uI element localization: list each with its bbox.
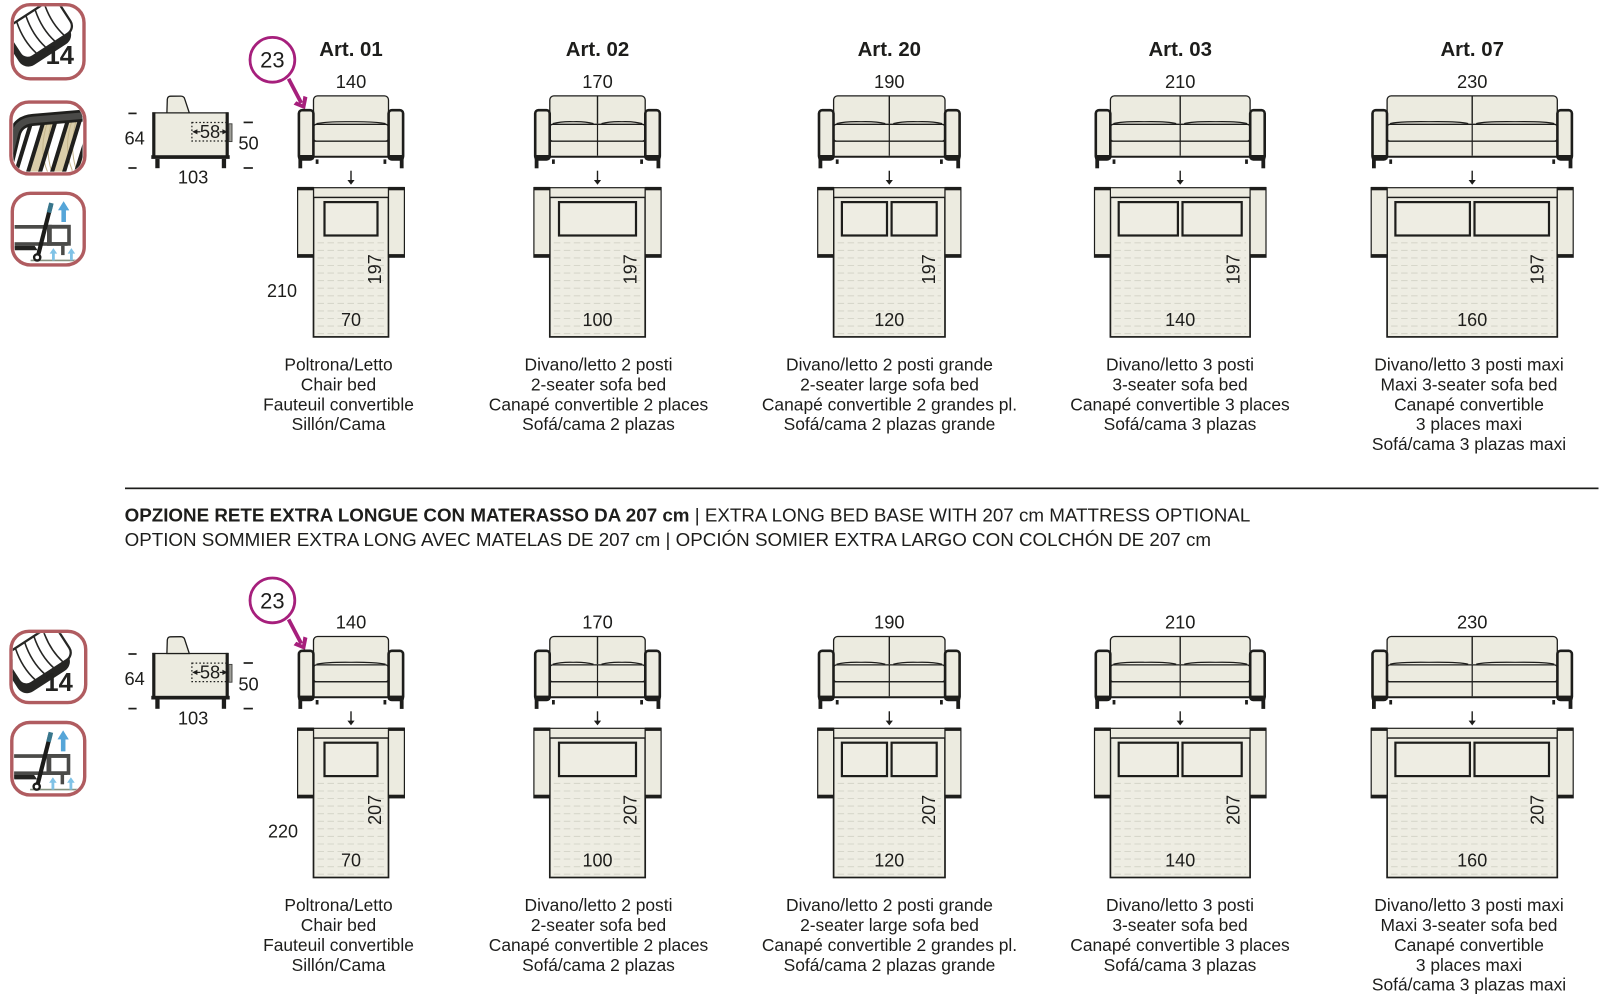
svg-text:207: 207 xyxy=(621,795,641,825)
svg-text:207: 207 xyxy=(365,795,385,825)
svg-text:207: 207 xyxy=(919,795,939,825)
svg-text:Divano/letto 3 posti maxiMaxi: Divano/letto 3 posti maxiMaxi 3-seater s… xyxy=(1372,355,1566,455)
svg-text:Divano/letto 2 posti grande2-s: Divano/letto 2 posti grande2-seater larg… xyxy=(762,895,1017,975)
svg-text:58: 58 xyxy=(200,662,220,683)
svg-text:58: 58 xyxy=(200,121,220,142)
svg-text:100: 100 xyxy=(582,851,612,871)
svg-text:Divano/letto 3 posti maxiMaxi: Divano/letto 3 posti maxiMaxi 3-seater s… xyxy=(1372,895,1566,995)
svg-text:120: 120 xyxy=(874,851,904,871)
svg-text:197: 197 xyxy=(621,254,641,284)
svg-text:207: 207 xyxy=(1527,795,1547,825)
svg-text:14: 14 xyxy=(44,669,73,697)
svg-text:64: 64 xyxy=(125,668,145,689)
svg-text:230: 230 xyxy=(1457,71,1488,92)
svg-text:23: 23 xyxy=(260,588,284,613)
svg-text:170: 170 xyxy=(582,612,613,633)
svg-text:Art. 02: Art. 02 xyxy=(566,39,629,61)
svg-text:OPTION SOMMIER EXTRA LONG AVEC: OPTION SOMMIER EXTRA LONG AVEC MATELAS D… xyxy=(125,529,1211,550)
svg-text:14: 14 xyxy=(46,42,75,70)
svg-text:197: 197 xyxy=(365,254,385,284)
svg-text:197: 197 xyxy=(1224,254,1244,284)
svg-text:Art. 20: Art. 20 xyxy=(858,39,921,61)
svg-text:140: 140 xyxy=(336,71,367,92)
svg-text:220: 220 xyxy=(268,822,298,842)
svg-text:210: 210 xyxy=(267,281,297,301)
svg-text:Art. 07: Art. 07 xyxy=(1440,39,1503,61)
svg-text:210: 210 xyxy=(1165,71,1196,92)
svg-text:207: 207 xyxy=(1224,795,1244,825)
svg-text:140: 140 xyxy=(336,612,367,633)
svg-text:23: 23 xyxy=(260,48,284,73)
svg-text:70: 70 xyxy=(341,851,361,871)
svg-text:50: 50 xyxy=(238,133,258,154)
svg-text:190: 190 xyxy=(874,612,905,633)
svg-text:103: 103 xyxy=(178,167,209,188)
svg-text:Art. 03: Art. 03 xyxy=(1148,39,1211,61)
svg-text:Art. 01: Art. 01 xyxy=(319,39,382,61)
svg-text:140: 140 xyxy=(1165,310,1195,330)
svg-text:160: 160 xyxy=(1457,851,1487,871)
svg-text:210: 210 xyxy=(1165,612,1196,633)
svg-text:64: 64 xyxy=(125,128,145,149)
svg-text:140: 140 xyxy=(1165,851,1195,871)
svg-text:103: 103 xyxy=(178,707,209,728)
svg-text:Divano/letto 2 posti grande2-s: Divano/letto 2 posti grande2-seater larg… xyxy=(762,355,1017,435)
svg-text:OPZIONE RETE EXTRA LONGUE CON: OPZIONE RETE EXTRA LONGUE CON MATERASSO … xyxy=(125,505,1251,526)
svg-text:197: 197 xyxy=(1527,254,1547,284)
svg-text:190: 190 xyxy=(874,71,905,92)
svg-text:170: 170 xyxy=(582,71,613,92)
svg-text:160: 160 xyxy=(1457,310,1487,330)
svg-text:197: 197 xyxy=(919,254,939,284)
svg-text:70: 70 xyxy=(341,310,361,330)
svg-text:100: 100 xyxy=(582,310,612,330)
svg-text:230: 230 xyxy=(1457,612,1488,633)
svg-text:120: 120 xyxy=(874,310,904,330)
svg-text:50: 50 xyxy=(238,673,258,694)
